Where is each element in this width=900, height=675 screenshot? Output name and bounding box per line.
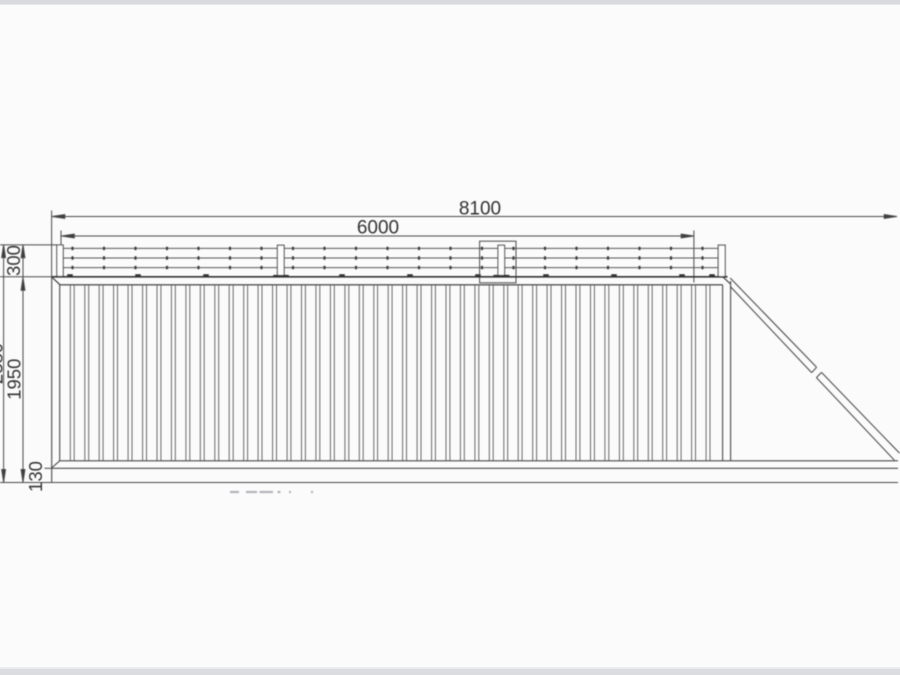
svg-text:300: 300: [3, 245, 24, 276]
svg-text:6000: 6000: [357, 218, 399, 239]
svg-text:1950: 1950: [4, 359, 25, 400]
svg-text:8100: 8100: [459, 198, 501, 219]
svg-text:130: 130: [25, 461, 46, 492]
